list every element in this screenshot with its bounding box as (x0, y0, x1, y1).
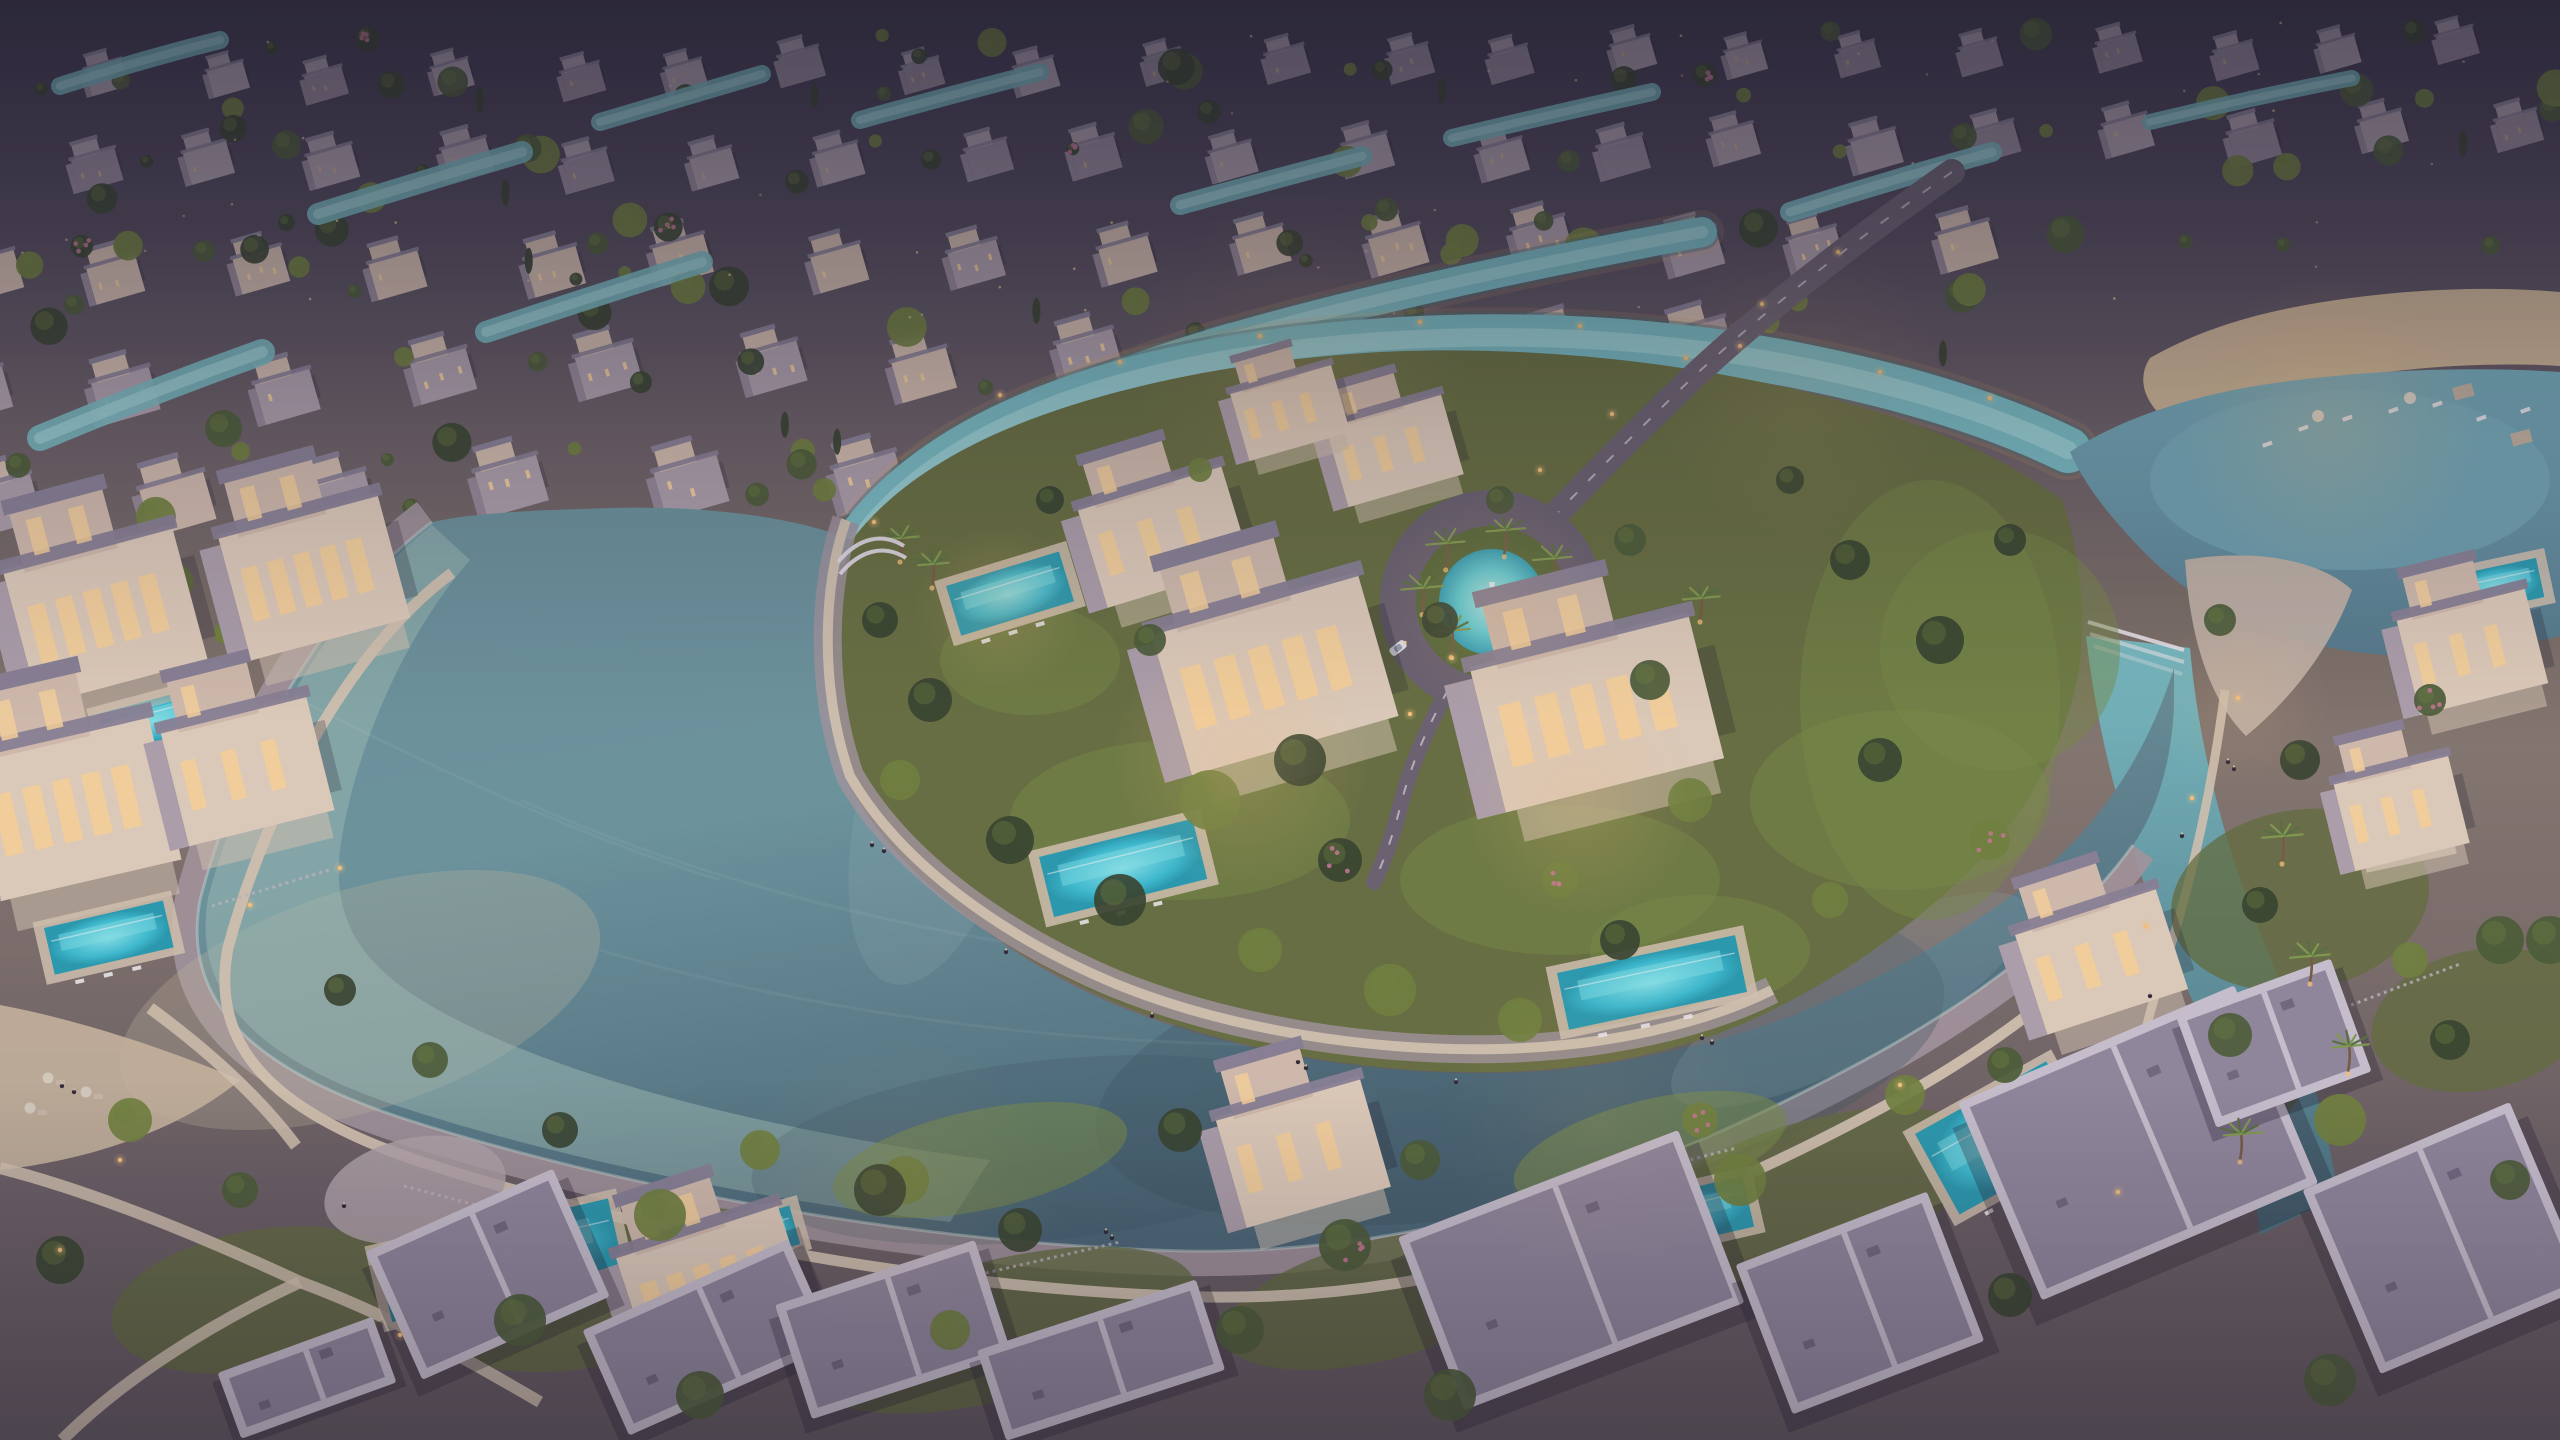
aerial-dusk-render (0, 0, 2560, 1440)
dusk-tint (0, 0, 2560, 1440)
atmosphere (0, 0, 2560, 1440)
aerial-render-canvas (0, 0, 2560, 1440)
